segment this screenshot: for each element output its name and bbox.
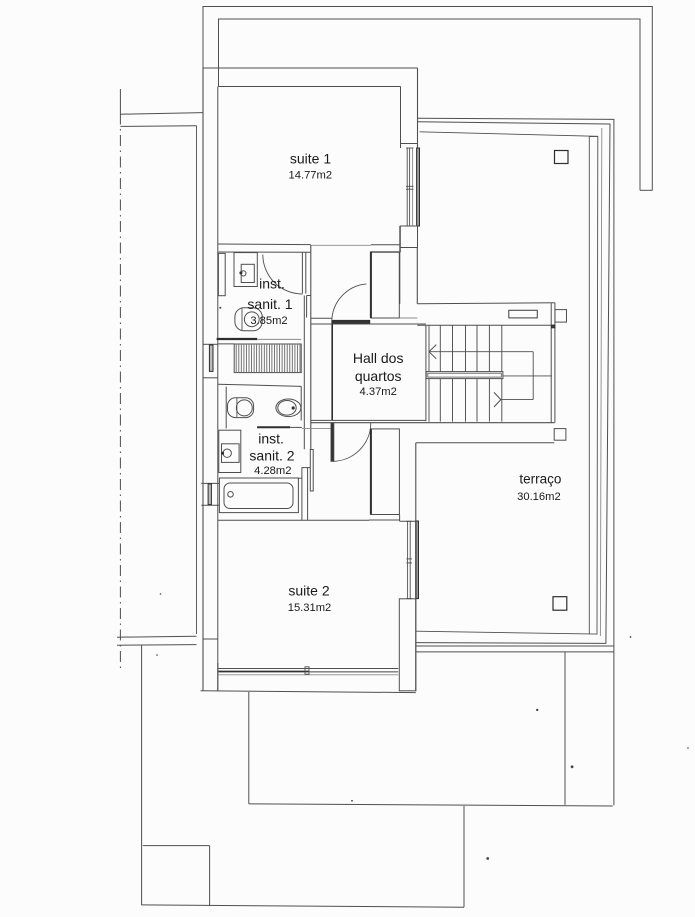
svg-text:suite 1: suite 1 xyxy=(290,151,331,167)
svg-text:30.16m2: 30.16m2 xyxy=(517,491,561,503)
svg-text:4.28m2: 4.28m2 xyxy=(254,465,291,477)
svg-text:inst.: inst. xyxy=(259,275,285,291)
svg-text:terraço: terraço xyxy=(519,472,561,487)
svg-text:14.77m2: 14.77m2 xyxy=(289,170,333,182)
svg-text:Hall dos: Hall dos xyxy=(353,350,404,366)
svg-text:3.85m2: 3.85m2 xyxy=(250,315,287,327)
svg-text:4.37m2: 4.37m2 xyxy=(360,386,397,398)
svg-text:quartos: quartos xyxy=(355,368,402,384)
svg-text:suite 2: suite 2 xyxy=(288,583,329,599)
svg-text:15.31m2: 15.31m2 xyxy=(288,602,332,614)
svg-text:inst.: inst. xyxy=(258,431,284,447)
svg-text:sanit. 2: sanit. 2 xyxy=(249,447,294,463)
svg-text:sanit. 1: sanit. 1 xyxy=(247,296,292,312)
